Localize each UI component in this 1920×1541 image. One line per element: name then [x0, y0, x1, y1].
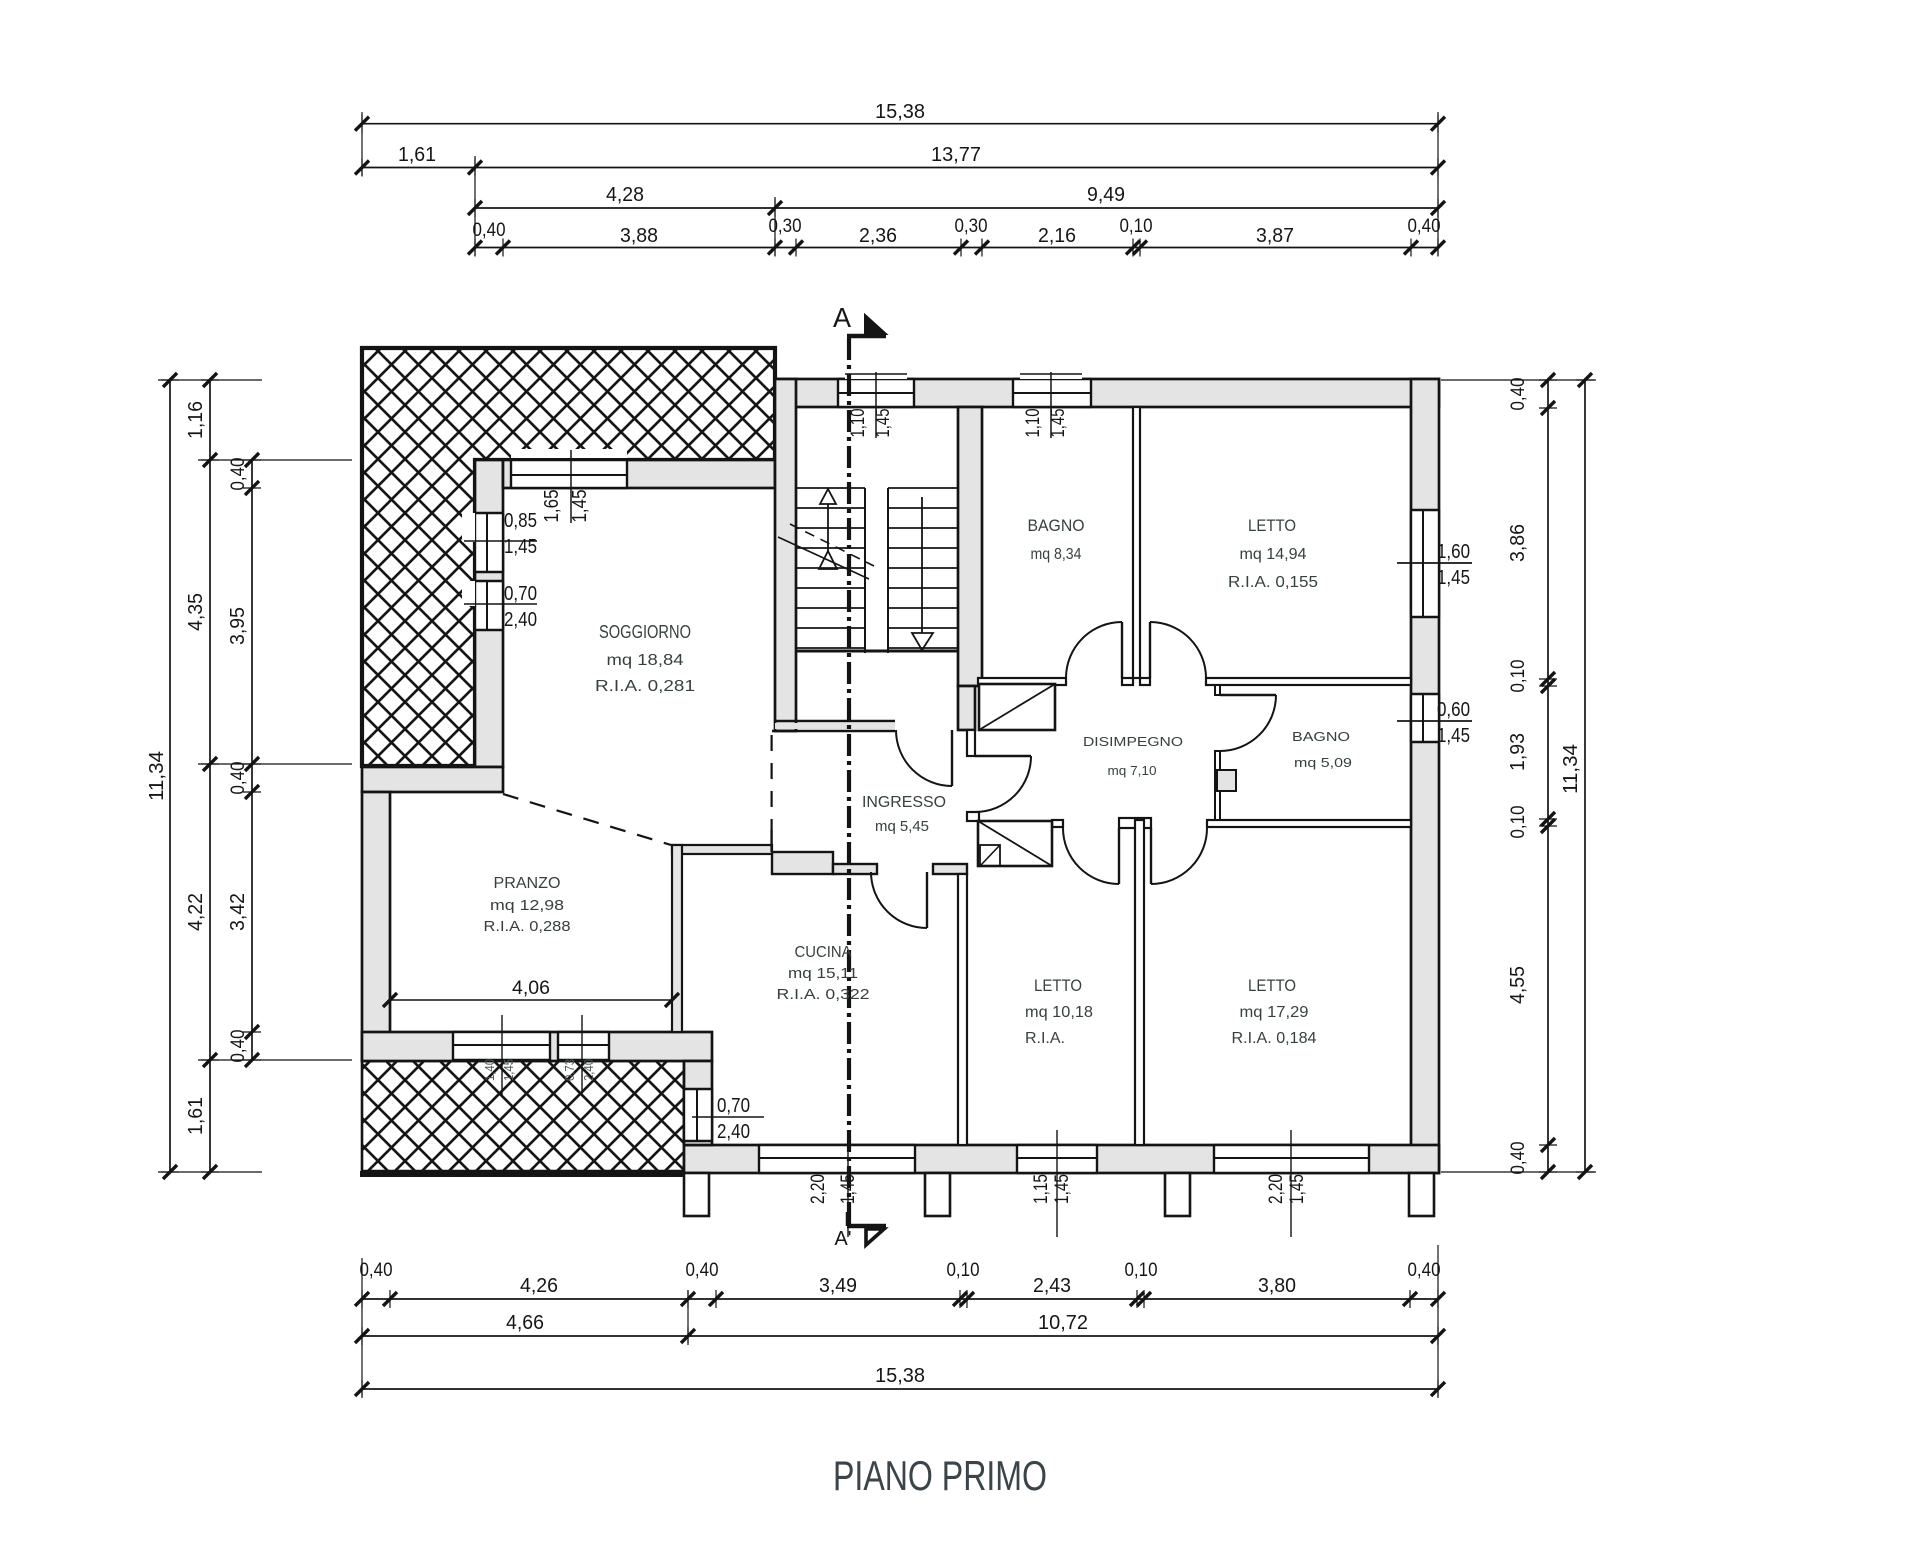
svg-text:1,10: 1,10 — [848, 409, 869, 438]
svg-text:0,40: 0,40 — [686, 1260, 719, 1281]
svg-text:2,40: 2,40 — [581, 1059, 596, 1081]
svg-text:2,20: 2,20 — [1266, 1174, 1287, 1204]
svg-text:1,61: 1,61 — [185, 1097, 207, 1135]
svg-text:INGRESSO: INGRESSO — [862, 794, 946, 811]
svg-text:R.I.A. 0,184: R.I.A. 0,184 — [1232, 1030, 1317, 1047]
svg-text:3,49: 3,49 — [819, 1275, 857, 1297]
svg-text:0,40: 0,40 — [228, 458, 249, 491]
svg-text:9,49: 9,49 — [1087, 184, 1125, 206]
svg-text:0,70: 0,70 — [504, 583, 537, 605]
svg-text:0,85: 0,85 — [504, 510, 537, 532]
svg-text:BAGNO: BAGNO — [1028, 516, 1085, 535]
svg-text:1,45: 1,45 — [1287, 1174, 1308, 1204]
svg-text:13,77: 13,77 — [931, 144, 981, 166]
svg-text:1,16: 1,16 — [185, 401, 207, 439]
svg-text:3,88: 3,88 — [620, 225, 658, 247]
svg-text:LETTO: LETTO — [1248, 976, 1296, 995]
svg-text:15,38: 15,38 — [875, 1365, 925, 1387]
svg-text:SOGGIORNO: SOGGIORNO — [599, 622, 691, 642]
svg-text:0,40: 0,40 — [1408, 216, 1441, 237]
svg-text:0,40: 0,40 — [473, 220, 506, 241]
svg-text:1,60: 1,60 — [1437, 541, 1470, 563]
svg-text:2,40: 2,40 — [717, 1121, 750, 1143]
svg-text:3,87: 3,87 — [1256, 225, 1294, 247]
svg-text:CUCINA: CUCINA — [795, 944, 852, 961]
svg-text:PIANO PRIMO: PIANO PRIMO — [833, 1452, 1047, 1499]
svg-text:2,20: 2,20 — [808, 1174, 829, 1204]
svg-text:0,73: 0,73 — [562, 1059, 577, 1081]
svg-text:LETTO: LETTO — [1248, 516, 1296, 535]
svg-text:1,93: 1,93 — [1507, 733, 1529, 771]
svg-text:3,80: 3,80 — [1258, 1275, 1296, 1297]
svg-text:4,35: 4,35 — [185, 593, 207, 631]
svg-text:4,55: 4,55 — [1507, 966, 1529, 1004]
svg-text:4,26: 4,26 — [520, 1275, 558, 1297]
svg-text:0,70: 0,70 — [717, 1095, 750, 1117]
svg-text:mq 14,94: mq 14,94 — [1240, 546, 1307, 563]
svg-text:BAGNO: BAGNO — [1292, 729, 1350, 744]
svg-text:0,10: 0,10 — [1508, 806, 1529, 839]
svg-text:1,45: 1,45 — [504, 536, 537, 558]
svg-text:1,40: 1,40 — [482, 1059, 497, 1081]
svg-text:mq 5,09: mq 5,09 — [1294, 755, 1352, 770]
svg-text:0,40: 0,40 — [228, 762, 249, 795]
svg-text:1,45: 1,45 — [501, 1059, 516, 1081]
svg-text:A: A — [833, 302, 851, 333]
svg-text:1,45: 1,45 — [873, 409, 894, 438]
svg-text:1,45: 1,45 — [1437, 567, 1470, 589]
svg-text:0,40: 0,40 — [1508, 1142, 1529, 1175]
svg-text:mq 8,34: mq 8,34 — [1031, 546, 1082, 563]
svg-text:0,10: 0,10 — [1120, 216, 1153, 237]
svg-text:0,10: 0,10 — [1508, 660, 1529, 693]
svg-text:4,22: 4,22 — [185, 893, 207, 931]
svg-text:1,45: 1,45 — [1437, 725, 1470, 747]
svg-text:mq 7,10: mq 7,10 — [1108, 763, 1157, 778]
svg-text:11,34: 11,34 — [146, 751, 168, 801]
svg-text:1,10: 1,10 — [1023, 409, 1044, 438]
svg-text:0,40: 0,40 — [1508, 378, 1529, 411]
svg-text:0,40: 0,40 — [1408, 1260, 1441, 1281]
svg-text:R.I.A. 0,288: R.I.A. 0,288 — [484, 918, 571, 935]
svg-text:1,15: 1,15 — [1031, 1174, 1052, 1204]
svg-text:0,40: 0,40 — [360, 1260, 393, 1281]
svg-text:mq 5,45: mq 5,45 — [875, 818, 929, 835]
svg-text:1,61: 1,61 — [398, 144, 436, 166]
svg-text:0,30: 0,30 — [769, 216, 802, 237]
svg-text:DISIMPEGNO: DISIMPEGNO — [1083, 734, 1183, 749]
svg-text:R.I.A. 0,322: R.I.A. 0,322 — [777, 986, 870, 1003]
svg-text:1,45: 1,45 — [1052, 1174, 1073, 1204]
svg-text:1,45: 1,45 — [569, 490, 591, 523]
svg-text:PRANZO: PRANZO — [494, 875, 561, 892]
svg-text:mq 10,18: mq 10,18 — [1025, 1004, 1093, 1021]
svg-text:3,42: 3,42 — [227, 893, 249, 931]
svg-text:LETTO: LETTO — [1034, 976, 1082, 995]
svg-text:3,86: 3,86 — [1507, 524, 1529, 562]
svg-text:mq 17,29: mq 17,29 — [1240, 1004, 1309, 1021]
svg-text:4,06: 4,06 — [512, 978, 550, 999]
svg-text:4,28: 4,28 — [606, 184, 644, 206]
svg-text:R.I.A. 0,155: R.I.A. 0,155 — [1228, 574, 1318, 591]
svg-text:0,40: 0,40 — [228, 1030, 249, 1063]
svg-text:0,10: 0,10 — [1125, 1260, 1158, 1281]
svg-text:mq 15,11: mq 15,11 — [788, 965, 858, 982]
svg-text:0,10: 0,10 — [947, 1260, 980, 1281]
svg-text:1,45: 1,45 — [1048, 409, 1069, 438]
svg-text:11,34: 11,34 — [1560, 744, 1582, 794]
svg-text:mq 18,84: mq 18,84 — [607, 652, 684, 669]
svg-text:4,66: 4,66 — [506, 1312, 544, 1334]
svg-text:10,72: 10,72 — [1038, 1312, 1088, 1334]
svg-text:mq 12,98: mq 12,98 — [490, 897, 564, 914]
svg-text:15,38: 15,38 — [875, 101, 925, 123]
svg-text:2,40: 2,40 — [504, 609, 537, 631]
svg-text:A': A' — [835, 1228, 852, 1250]
svg-text:1,65: 1,65 — [541, 490, 563, 523]
svg-text:0,30: 0,30 — [955, 216, 988, 237]
svg-text:R.I.A.: R.I.A. — [1025, 1030, 1065, 1047]
svg-text:R.I.A. 0,281: R.I.A. 0,281 — [595, 678, 695, 695]
svg-text:2,43: 2,43 — [1033, 1275, 1071, 1297]
svg-text:3,95: 3,95 — [227, 607, 249, 645]
svg-text:0,60: 0,60 — [1437, 699, 1470, 721]
svg-text:2,36: 2,36 — [859, 225, 897, 247]
svg-text:2,16: 2,16 — [1038, 225, 1076, 247]
